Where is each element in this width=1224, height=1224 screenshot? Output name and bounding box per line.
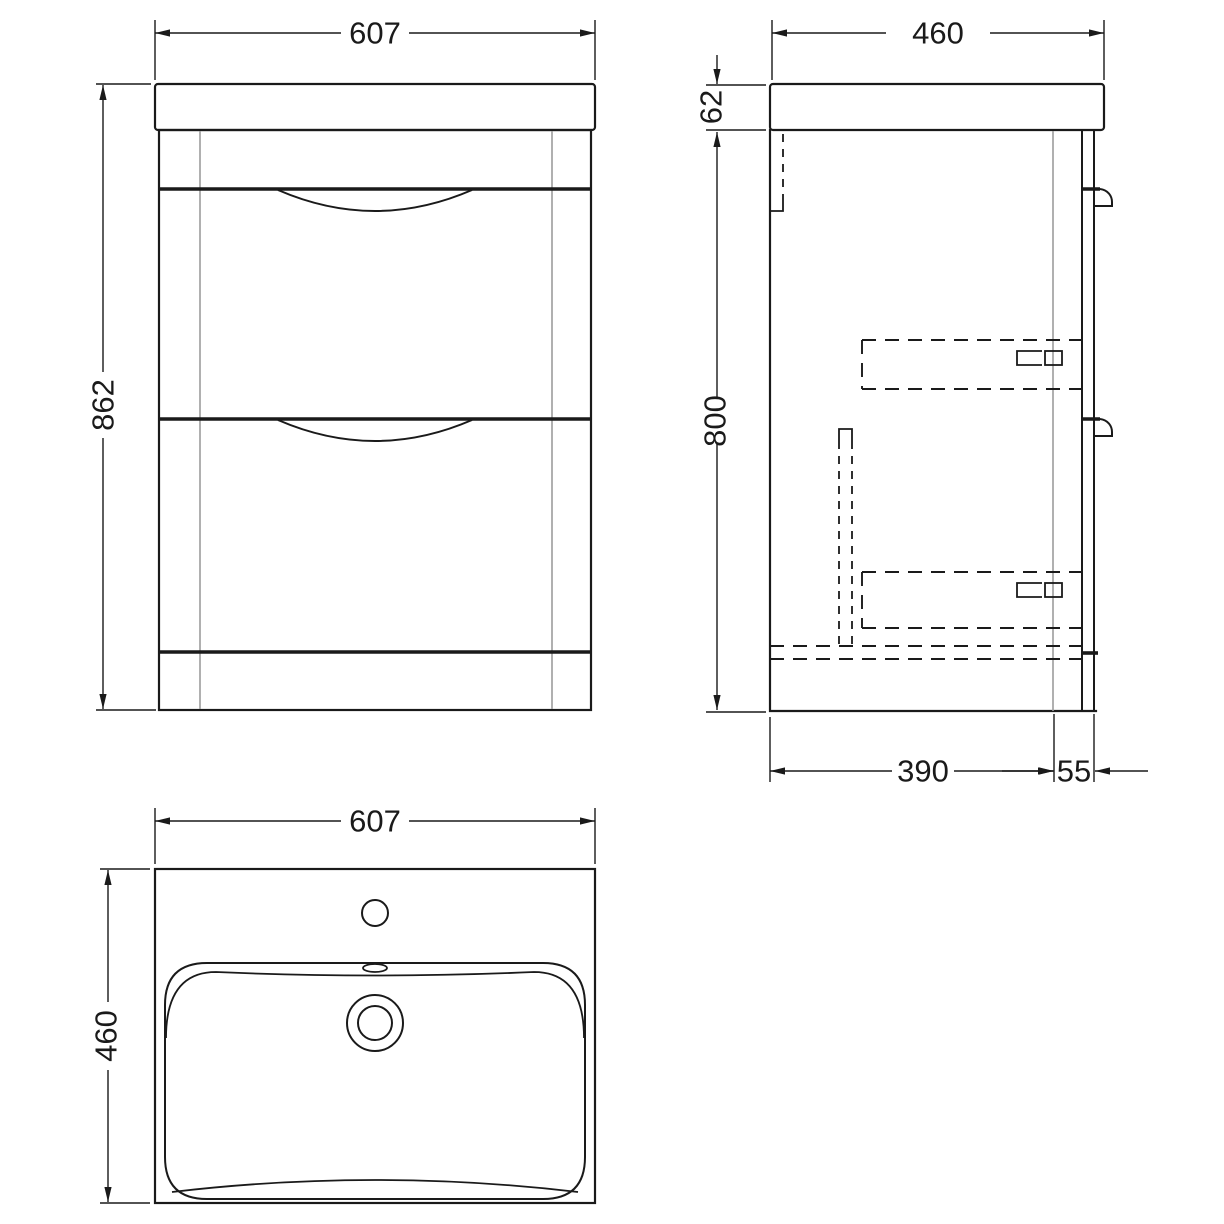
side-lower-drawer-runner-left bbox=[1017, 583, 1042, 597]
plan-tap-hole bbox=[362, 900, 388, 926]
side-cabinet-outline bbox=[770, 130, 1096, 711]
side-lower-drawer-box-hidden bbox=[862, 572, 1081, 628]
plan-overflow-slot bbox=[363, 964, 387, 972]
plan-bowl-floor-curve bbox=[172, 1180, 578, 1192]
drawing-canvas: 607 862 460 62 800 bbox=[0, 0, 1224, 1224]
side-carcass-depth-dimension: 390 bbox=[897, 754, 949, 789]
plan-basin-outline bbox=[155, 869, 595, 1203]
side-hidden-plinth-lines bbox=[770, 646, 1081, 659]
side-upper-drawer-runner-left bbox=[1017, 351, 1042, 365]
side-height-dimension: 800 bbox=[698, 395, 733, 447]
front-width-dimension: 607 bbox=[349, 16, 401, 51]
plan-drain-inner bbox=[358, 1006, 392, 1040]
front-basin-top bbox=[155, 84, 595, 130]
front-drawer1-handle-recess bbox=[278, 190, 472, 211]
front-view: 607 862 bbox=[86, 16, 596, 711]
side-depth-dimension: 460 bbox=[912, 16, 964, 51]
plan-drain-outer bbox=[347, 995, 403, 1051]
plan-bowl-outline bbox=[165, 963, 585, 1199]
side-basin-top bbox=[770, 84, 1104, 130]
plan-width-dimension: 607 bbox=[349, 804, 401, 839]
side-handle1-profile bbox=[1094, 189, 1112, 206]
side-drawer-front-panel bbox=[1082, 131, 1094, 711]
side-waste-pipe-hidden-lines bbox=[839, 441, 852, 645]
side-overhang-dimension: 55 bbox=[1057, 754, 1091, 789]
front-height-dimension: 862 bbox=[86, 379, 121, 431]
front-drawer2-handle-recess bbox=[278, 420, 472, 441]
side-waste-pipe-cap bbox=[839, 429, 852, 441]
side-hidden-basin-foot bbox=[770, 201, 783, 211]
plan-view: 607 460 bbox=[89, 804, 596, 1204]
plan-depth-dimension: 460 bbox=[89, 1010, 124, 1062]
side-basin-thickness-dimension: 62 bbox=[694, 90, 729, 124]
side-view: 460 62 800 bbox=[694, 16, 1149, 789]
vanity-technical-drawing: 607 862 460 62 800 bbox=[0, 0, 1224, 1224]
side-handle2-profile bbox=[1094, 419, 1112, 436]
